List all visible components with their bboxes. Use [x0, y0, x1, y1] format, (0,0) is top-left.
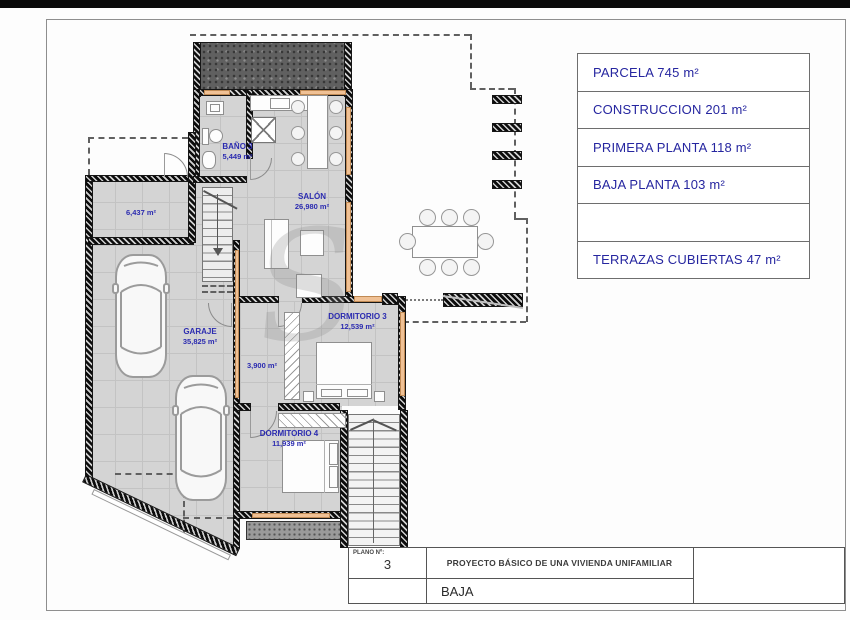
door-arc	[164, 153, 188, 177]
wall-segment	[278, 403, 340, 411]
chair	[329, 100, 343, 114]
chair	[329, 152, 343, 166]
wall-segment	[400, 410, 408, 548]
kitchen-island	[307, 95, 328, 169]
wall-segment	[382, 293, 398, 305]
info-row-baja-planta: BAJA PLANTA 103 m²	[578, 167, 809, 205]
room-area: 6,437 m²	[116, 208, 166, 218]
stairs-arrow-icon	[213, 248, 223, 256]
wall-segment	[88, 237, 194, 245]
room-name: DORMITORIO 4	[260, 429, 319, 438]
chair	[463, 209, 480, 226]
title-block-divider	[349, 578, 693, 579]
boundary-dashed-line	[470, 88, 514, 90]
room-label-pasillo: 3,900 m²	[242, 361, 282, 371]
stairs-dashed-tread	[202, 285, 233, 287]
chair	[291, 152, 305, 166]
wall-segment	[233, 403, 251, 411]
toilet-tank	[202, 128, 209, 145]
nightstand	[374, 391, 385, 402]
car-icon	[112, 252, 170, 380]
info-row-primera-planta: PRIMERA PLANTA 118 m²	[578, 129, 809, 167]
wardrobe	[284, 312, 300, 400]
chair	[441, 259, 458, 276]
room-label-dormitorio4: DORMITORIO 4 11,939 m²	[244, 429, 334, 449]
chair	[419, 259, 436, 276]
tv-unit	[296, 274, 322, 298]
pillow	[347, 389, 368, 397]
info-row-construccion: CONSTRUCCION 201 m²	[578, 92, 809, 130]
room-area: 11,939 m²	[244, 439, 334, 449]
toilet-bowl	[209, 129, 223, 143]
project-title: PROYECTO BÁSICO DE UNA VIVIENDA UNIFAMIL…	[426, 548, 693, 578]
wall-segment	[233, 296, 279, 303]
room-name: BAÑO 3	[222, 142, 252, 151]
kitchen-sink	[270, 98, 290, 109]
area-info-panel: PARCELA 745 m² CONSTRUCCION 201 m² PRIME…	[577, 53, 810, 279]
covered-terrace	[200, 42, 347, 96]
pillow	[329, 466, 338, 488]
window	[346, 202, 351, 292]
room-label-dormitorio3: DORMITORIO 3 12,539 m²	[310, 312, 405, 332]
porch-dashed-line	[88, 137, 188, 139]
boundary-dashed-line	[526, 218, 528, 322]
pergola-column	[492, 151, 522, 160]
room-label-bano3: BAÑO 3 5,449 m²	[210, 142, 265, 162]
plano-number-label: PLANO Nº:	[353, 550, 384, 556]
room-label-trastero: 6,437 m²	[116, 208, 166, 218]
plano-number: 3	[349, 557, 426, 572]
bed-sheet-line	[316, 384, 372, 385]
info-row-empty	[578, 204, 809, 242]
car-icon	[172, 373, 230, 503]
wall-segment	[193, 176, 247, 183]
coffee-table	[300, 230, 324, 256]
floor-name: BAJA	[441, 584, 474, 599]
window	[354, 296, 382, 302]
room-name: DORMITORIO 3	[328, 312, 387, 321]
entrance-mat	[246, 521, 347, 540]
boundary-dashed-line	[470, 34, 472, 88]
chair	[441, 209, 458, 226]
room-area: 3,900 m²	[242, 361, 282, 371]
room-label-salon: SALÓN 26,980 m²	[282, 192, 342, 212]
sofa	[264, 219, 289, 269]
room-area: 35,825 m²	[170, 337, 230, 347]
room-label-garaje: GARAJE 35,825 m²	[170, 327, 230, 347]
boundary-dashed-line	[403, 321, 526, 323]
window	[235, 250, 239, 398]
pergola-column	[492, 95, 522, 104]
parking-dashed-line	[183, 517, 233, 519]
wall-segment	[340, 410, 348, 548]
boundary-dashed-line	[514, 218, 526, 220]
drawing-sheet: S BAÑO 3 5,449 m² SALÓN 26,980 m² 6,437 …	[0, 0, 850, 620]
outdoor-dining-table	[412, 226, 478, 258]
window	[346, 107, 351, 175]
window	[252, 513, 330, 518]
nightstand	[303, 391, 314, 402]
wall-segment	[188, 132, 196, 243]
window	[204, 90, 230, 95]
room-name: GARAJE	[183, 327, 216, 336]
title-block-divider	[693, 548, 694, 603]
boundary-dotted-line	[403, 299, 443, 301]
chair	[291, 126, 305, 140]
pergola-column	[492, 180, 522, 189]
chair	[291, 100, 305, 114]
room-name: SALÓN	[298, 192, 326, 201]
title-block: PLANO Nº: 3 PROYECTO BÁSICO DE UNA VIVIE…	[348, 547, 845, 604]
stairs-center-line	[373, 419, 374, 543]
room-area: 12,539 m²	[310, 322, 405, 332]
boundary-dashed-line	[190, 34, 470, 36]
room-area: 26,980 m²	[282, 202, 342, 212]
room-area: 5,449 m²	[210, 152, 265, 162]
bathroom-sink-basin	[210, 104, 220, 112]
pillow	[321, 389, 342, 397]
info-row-parcela: PARCELA 745 m²	[578, 54, 809, 92]
stairs-dashed-tread	[202, 291, 233, 293]
wardrobe	[278, 413, 346, 428]
shower-tray	[251, 117, 276, 143]
pergola-column	[492, 123, 522, 132]
stairs-direction-line	[217, 194, 218, 250]
chair	[399, 233, 416, 250]
wall-segment	[85, 175, 93, 483]
chair	[419, 209, 436, 226]
chair	[477, 233, 494, 250]
chair	[463, 259, 480, 276]
chair	[329, 126, 343, 140]
porch-dashed-line	[88, 137, 90, 175]
info-row-terrazas: TERRAZAS CUBIERTAS 47 m²	[578, 242, 809, 279]
